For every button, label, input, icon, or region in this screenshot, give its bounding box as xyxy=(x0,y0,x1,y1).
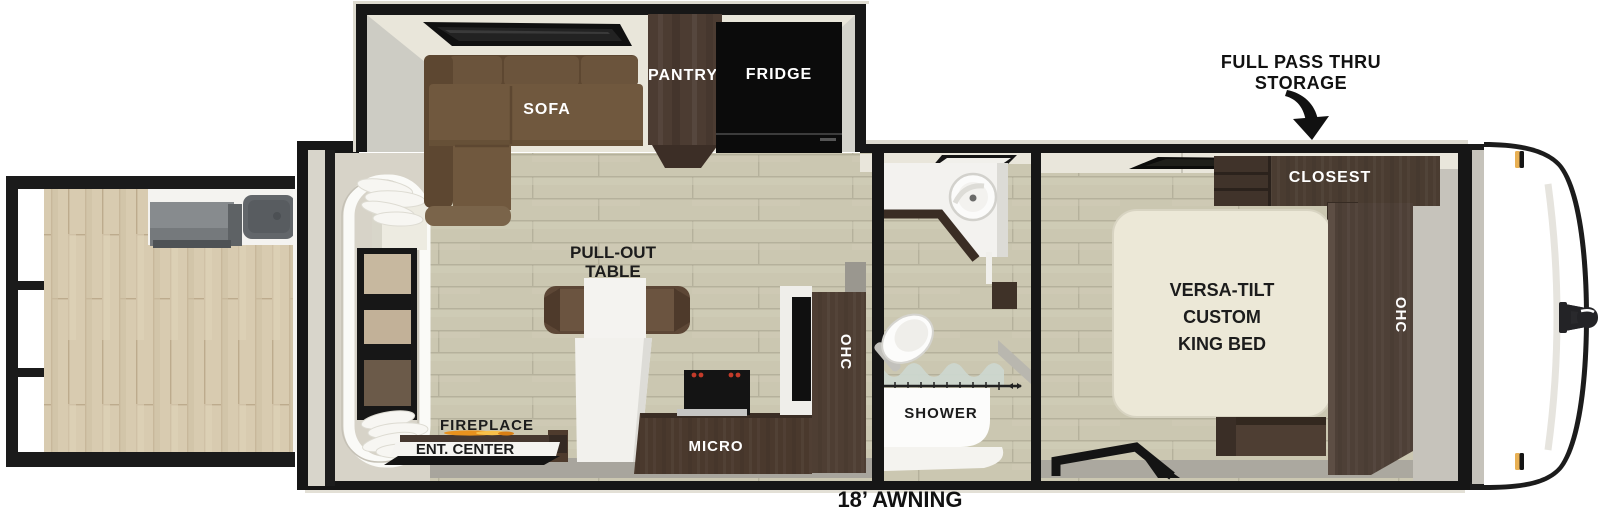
svg-text:SOFA: SOFA xyxy=(523,101,571,118)
svg-text:STORAGE: STORAGE xyxy=(1255,73,1347,93)
svg-text:PULL-OUT: PULL-OUT xyxy=(570,243,657,262)
svg-text:18’ AWNING: 18’ AWNING xyxy=(837,487,962,510)
svg-text:SHOWER: SHOWER xyxy=(904,405,978,422)
svg-text:CUSTOM: CUSTOM xyxy=(1183,307,1261,327)
svg-text:MICRO: MICRO xyxy=(689,438,744,455)
svg-text:VERSA-TILT: VERSA-TILT xyxy=(1170,280,1275,300)
svg-text:PANTRY: PANTRY xyxy=(648,67,718,84)
svg-text:FULL PASS THRU: FULL PASS THRU xyxy=(1221,52,1381,72)
svg-text:ENT. CENTER: ENT. CENTER xyxy=(416,441,515,458)
svg-text:OHC: OHC xyxy=(837,334,854,370)
svg-text:OHC: OHC xyxy=(1392,297,1409,333)
svg-text:CLOSEST: CLOSEST xyxy=(1289,169,1372,186)
svg-text:FRIDGE: FRIDGE xyxy=(746,66,812,83)
svg-text:KING BED: KING BED xyxy=(1178,334,1266,354)
